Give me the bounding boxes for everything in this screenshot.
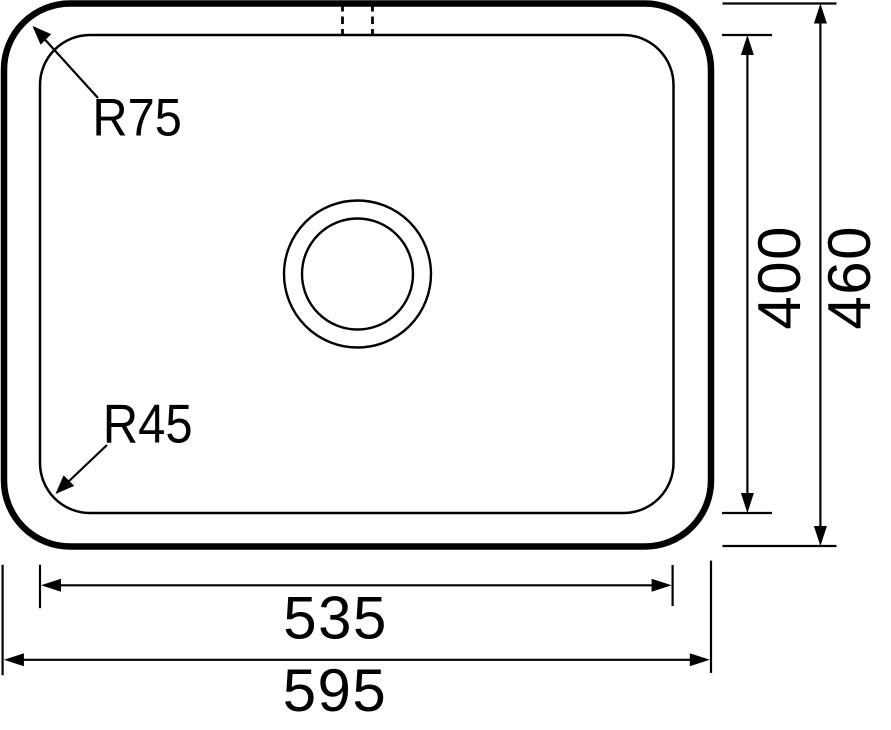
- svg-text:535: 535: [283, 584, 388, 651]
- svg-text:400: 400: [746, 225, 813, 330]
- svg-text:R75: R75: [92, 88, 181, 147]
- svg-text:595: 595: [283, 657, 388, 724]
- svg-text:460: 460: [816, 225, 883, 330]
- svg-text:R45: R45: [103, 394, 193, 455]
